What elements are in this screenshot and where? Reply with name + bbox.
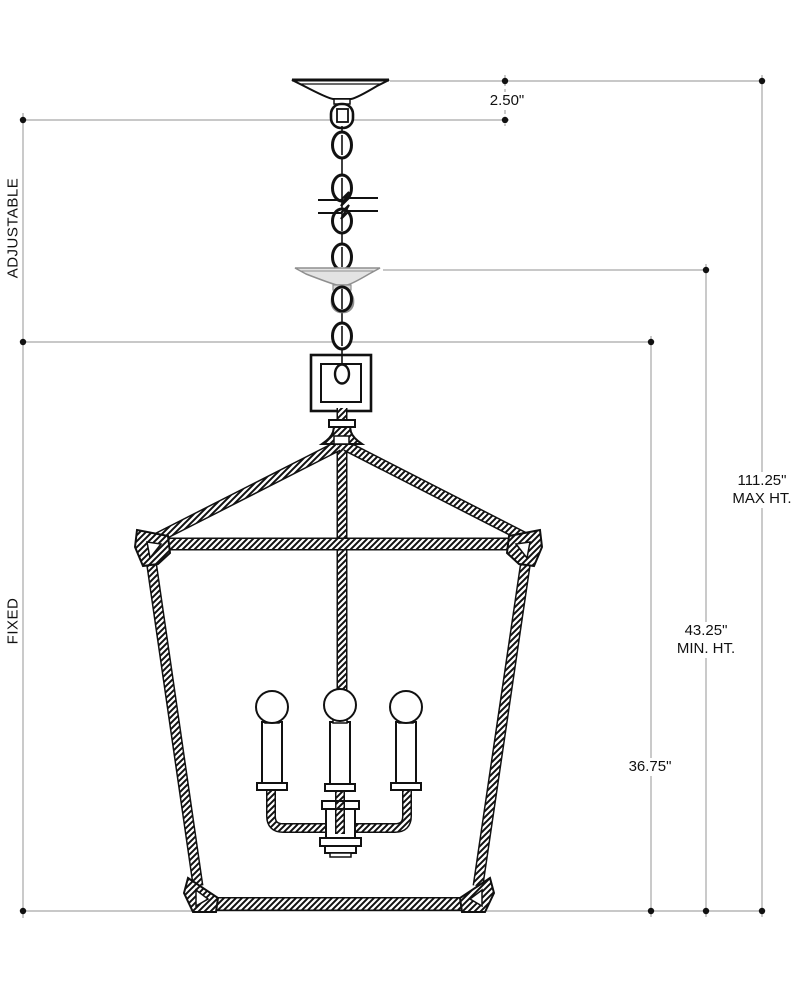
min-height-caption: MIN. HT.: [677, 640, 735, 657]
square-finial: [311, 355, 371, 411]
max-height-value: 111.25": [738, 472, 787, 489]
min-height-dimension: 43.25" MIN. HT.: [674, 622, 738, 658]
adjustable-range-label: ADJUSTABLE: [5, 174, 22, 283]
max-height-dimension: 111.25" MAX HT.: [729, 472, 794, 508]
min-height-value: 43.25": [685, 622, 728, 639]
lantern-spec-sheet: ADJUSTABLE FIXED 2.50" 111.25" MAX HT. 4…: [0, 0, 800, 1000]
max-height-caption: MAX HT.: [732, 490, 791, 507]
socket-hub-base: [320, 838, 361, 857]
ceiling-canopy: [292, 80, 389, 128]
crown-ropes: [153, 408, 530, 700]
lantern-height-dimension: 36.75": [626, 758, 675, 776]
fixed-range-label: FIXED: [5, 594, 22, 649]
candle-sleeves: [257, 718, 421, 791]
bulbs: [256, 689, 422, 723]
dimension-lines: [23, 75, 764, 918]
canopy-drop-dimension: 2.50": [487, 92, 528, 110]
fixture-line-drawing: [0, 0, 800, 1000]
candle-cluster: [256, 689, 422, 857]
